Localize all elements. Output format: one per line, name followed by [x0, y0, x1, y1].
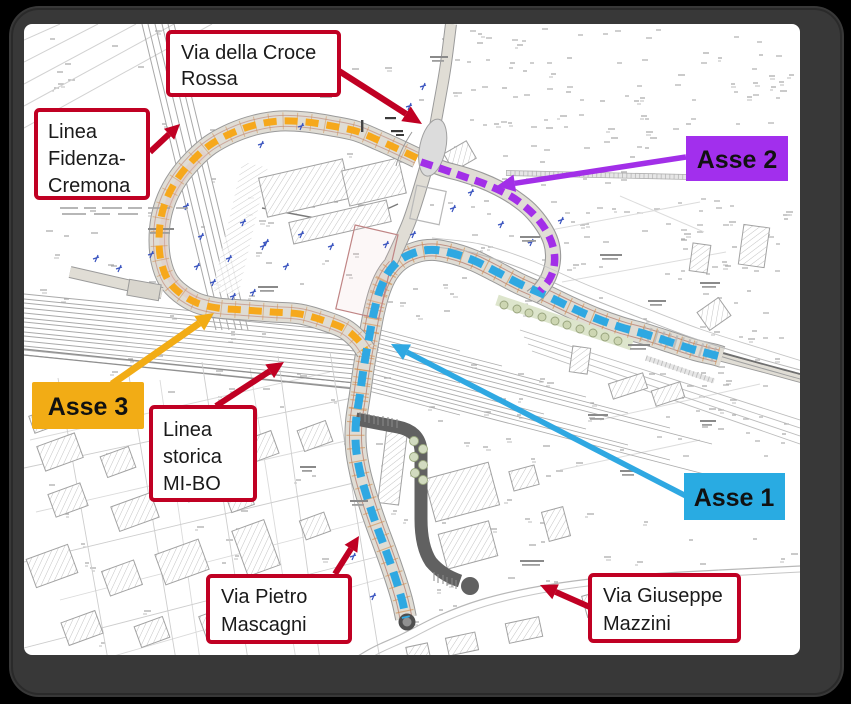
svg-text:Via Giuseppe: Via Giuseppe — [603, 585, 723, 607]
svg-text:Cremona: Cremona — [48, 175, 131, 197]
svg-text:Mazzini: Mazzini — [603, 613, 671, 635]
svg-text:Asse 1: Asse 1 — [694, 484, 775, 512]
svg-text:storica: storica — [163, 446, 223, 468]
svg-text:Asse 3: Asse 3 — [48, 393, 129, 421]
svg-text:Linea: Linea — [48, 121, 98, 143]
svg-text:Rossa: Rossa — [181, 68, 239, 90]
svg-text:Asse 2: Asse 2 — [697, 146, 778, 174]
svg-text:Linea: Linea — [163, 419, 213, 441]
svg-text:Fidenza-: Fidenza- — [48, 148, 126, 170]
svg-text:Via della Croce: Via della Croce — [181, 42, 316, 64]
svg-text:MI-BO: MI-BO — [163, 473, 221, 495]
svg-text:Via Pietro: Via Pietro — [221, 586, 307, 608]
svg-text:Mascagni: Mascagni — [221, 614, 307, 636]
